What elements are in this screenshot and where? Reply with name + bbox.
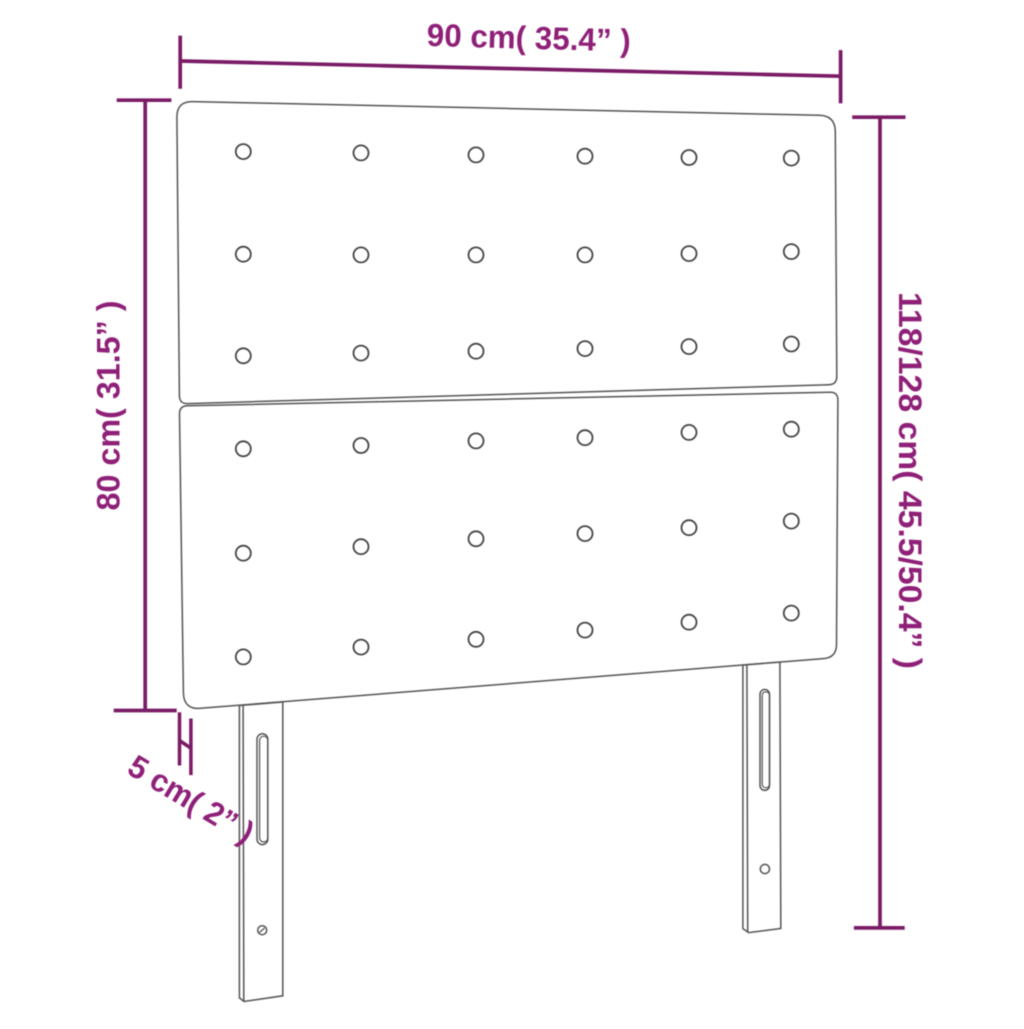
svg-text:90 cm( 35.4” ): 90 cm( 35.4” ) [426, 17, 631, 59]
svg-text:80 cm( 31.5” ): 80 cm( 31.5” ) [91, 301, 127, 511]
svg-text:118/128 cm( 45.5/50.4” ): 118/128 cm( 45.5/50.4” ) [892, 292, 928, 669]
